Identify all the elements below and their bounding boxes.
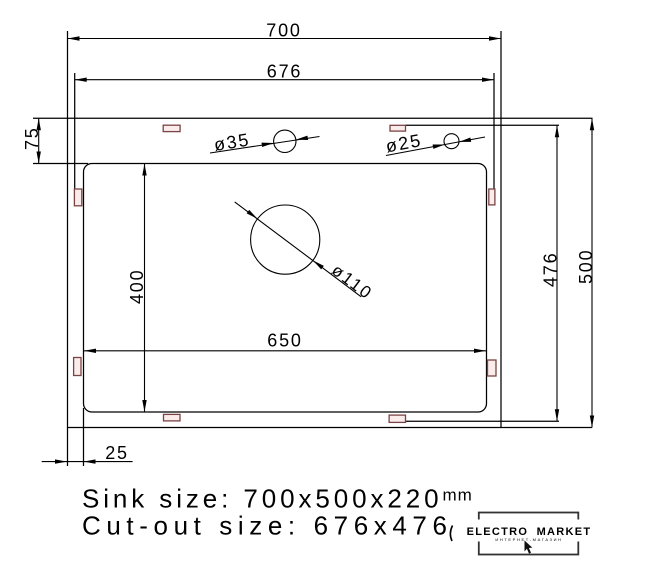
svg-text:25: 25 (105, 443, 129, 463)
svg-text:700: 700 (266, 21, 301, 41)
svg-text:75: 75 (22, 126, 42, 150)
svg-text:676: 676 (267, 62, 302, 82)
svg-text:Cut-out size: 676x476: Cut-out size: 676x476 (82, 511, 453, 541)
svg-text:650: 650 (267, 331, 302, 351)
svg-text:476: 476 (541, 252, 561, 287)
svg-text:ø25: ø25 (384, 130, 423, 156)
svg-text:ИНТЕРНЕТ-МАГАЗИН: ИНТЕРНЕТ-МАГАЗИН (495, 537, 562, 542)
svg-text:ø110: ø110 (328, 261, 376, 304)
svg-text:500: 500 (576, 249, 596, 284)
svg-text:Sink size: 700x500x220mm: Sink size: 700x500x220mm (82, 484, 473, 514)
svg-text:400: 400 (127, 269, 147, 304)
svg-text:ø35: ø35 (212, 129, 251, 154)
